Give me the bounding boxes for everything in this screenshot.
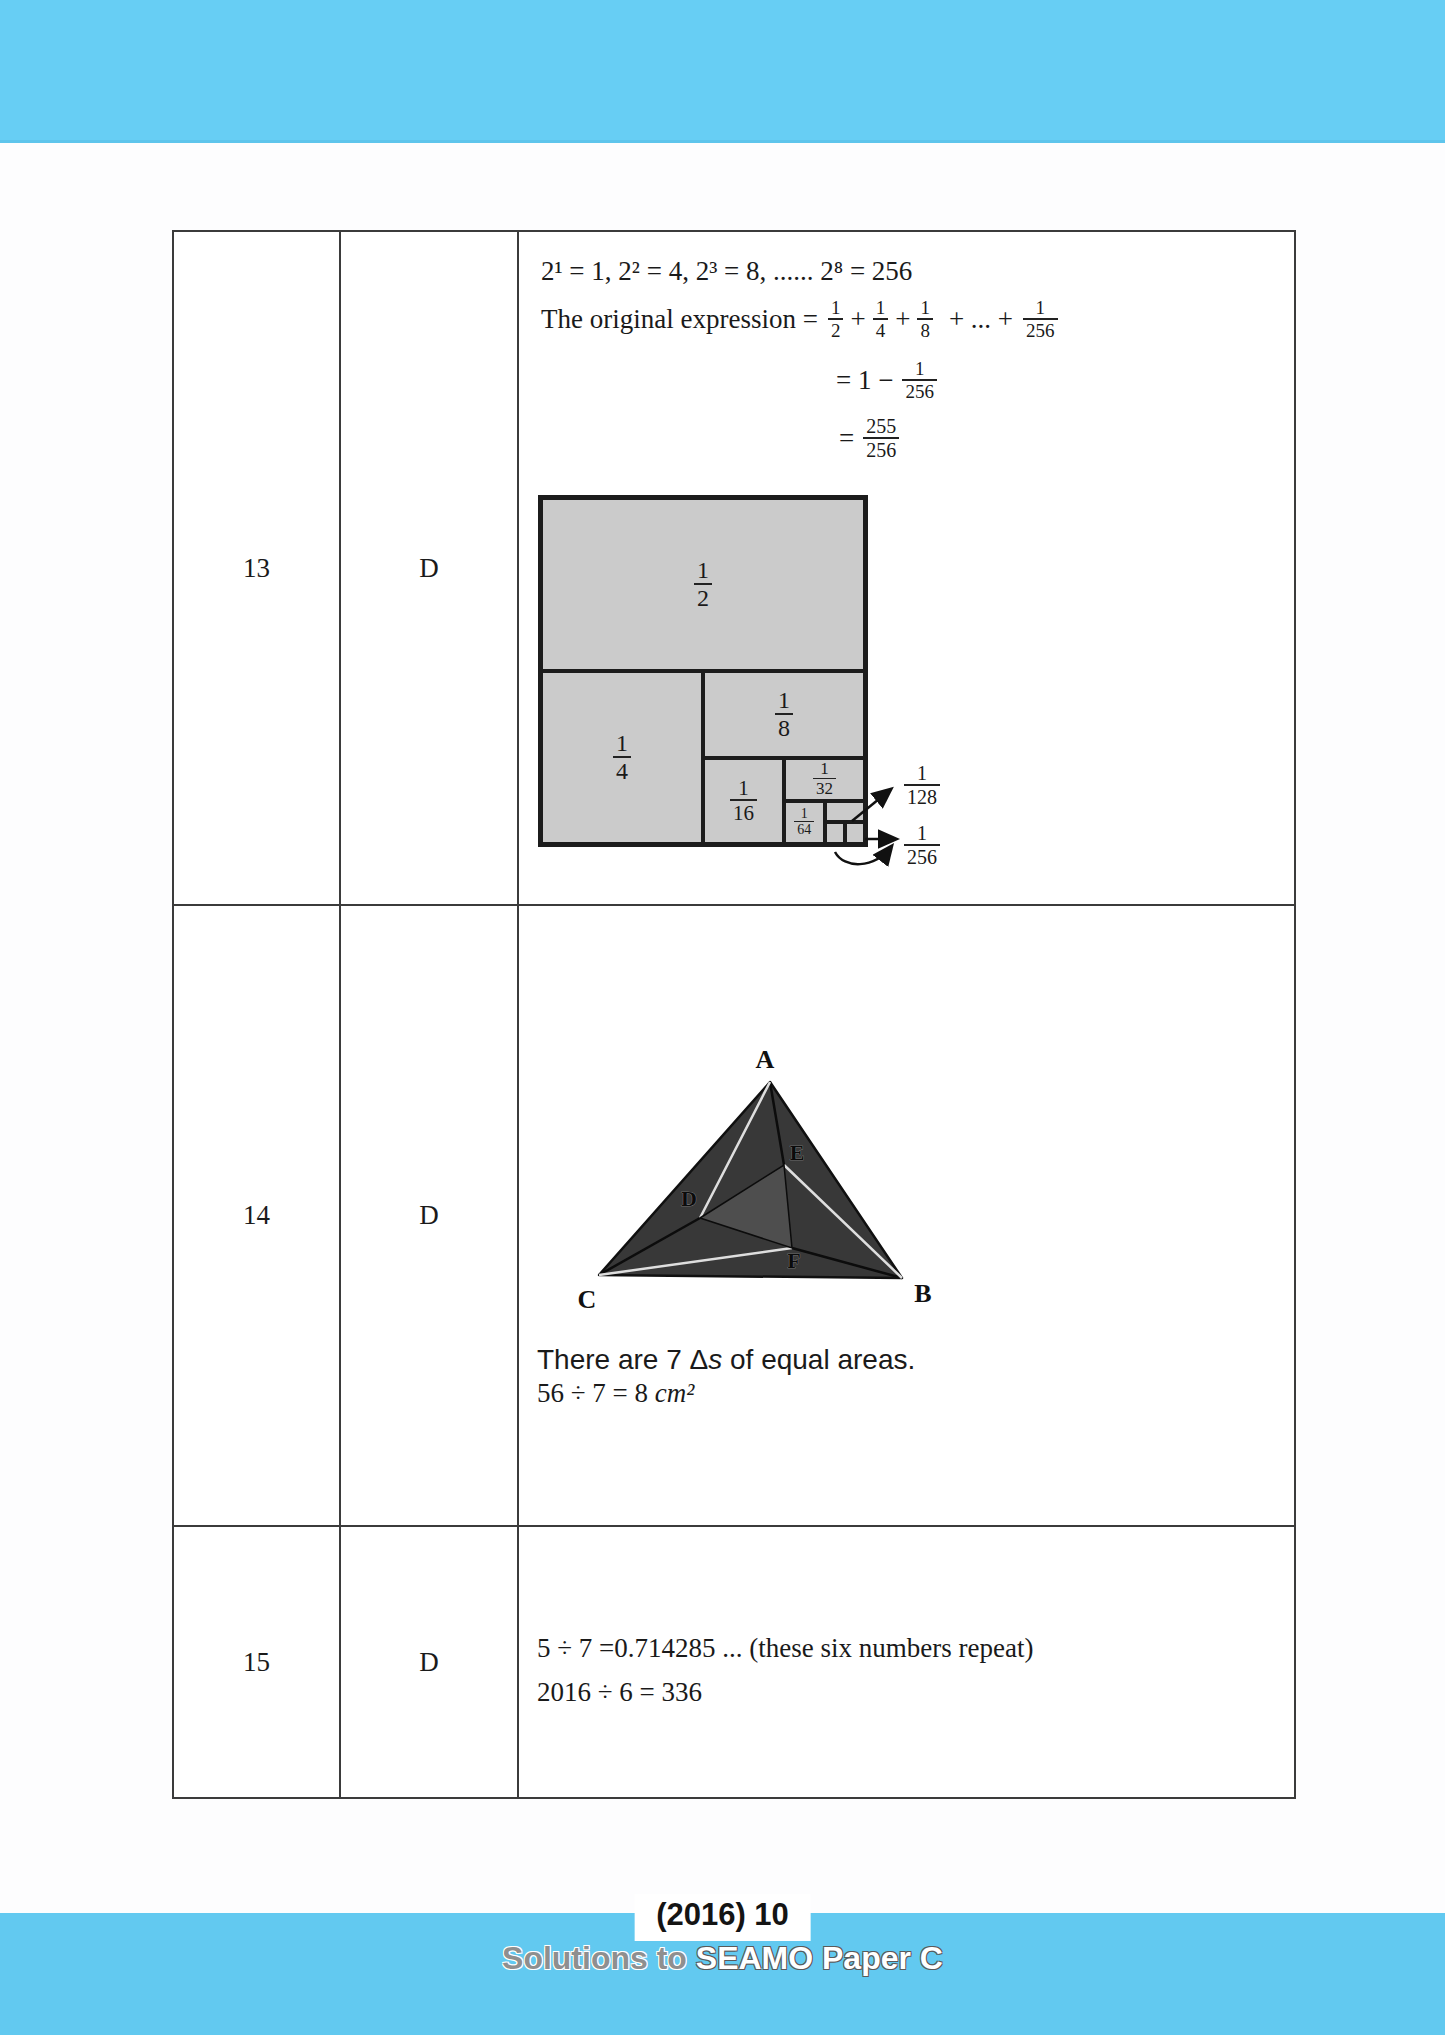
q14-answer-cell: D [341,906,519,1527]
q13-result-line: = 255256 [839,408,899,468]
region-one-256th-left [825,822,845,844]
footer-title-prefix: Solutions to [502,1940,696,1976]
region-one-eighth: 18 [703,671,865,758]
q13-number-cell: 13 [174,232,341,906]
plus-sign: + [850,304,865,335]
question-number: 14 [243,1200,270,1231]
plus-sign: + [895,304,910,335]
answer-letter: D [419,1200,439,1231]
q14-areas-text: There are 7 Δs of equal areas. [537,1344,915,1376]
q13-answer-cell: D [341,232,519,906]
q13-expression-line: The original expression = 12 + 14 + 18 +… [541,288,1058,350]
answer-letter: D [419,553,439,584]
label-one-256th: 1256 [904,823,940,868]
label-one-eighth: 18 [775,688,793,741]
region-one-128th [825,801,866,823]
q15-answer-cell: D [341,1527,519,1797]
q14-calc-line: 56 ÷ 7 = 8 cm² [537,1378,694,1409]
fraction-255-256: 255256 [863,416,899,461]
footer-title: Solutions to SEAMO Paper C [0,1940,1445,1977]
solutions-table: 13 D 2¹ = 1, 2² = 4, 2³ = 8, ...... 2⁸ =… [172,230,1296,1799]
q15-division-line: 5 ÷ 7 =0.714285 ... (these six numbers r… [537,1633,1033,1664]
curved-arrow-icon [835,847,891,864]
q13-solution-cell: 2¹ = 1, 2² = 4, 2³ = 8, ...... 2⁸ = 256 … [519,232,1294,906]
unit-square: 12 14 18 116 132 164 [538,495,868,847]
vertex-label-a: A [756,1045,775,1074]
question-number: 13 [243,553,270,584]
fraction-one-eighth: 18 [917,298,933,341]
q15-number-cell: 15 [174,1527,341,1797]
q15-solution-cell: 5 ÷ 7 =0.714285 ... (these six numbers r… [519,1527,1294,1797]
label-one-quarter: 14 [613,731,631,784]
point-label-f: F [787,1248,800,1273]
expression-prefix: The original expression = [541,304,818,335]
triangle-abc-svg: A B C D E F [549,1034,949,1334]
fraction-one-256th: 1256 [902,359,937,402]
region-one-thirtysecond: 132 [784,758,865,801]
region-one-quarter: 14 [541,671,703,844]
equals-sign: = [839,423,854,454]
outside-label-256: 1256 [904,823,940,868]
label-one-thirtysecond: 132 [813,760,836,798]
plus-dots-plus: + ... + [949,304,1013,335]
answer-letter: D [419,1647,439,1678]
vertex-label-b: B [914,1279,931,1308]
label-one-128th: 1128 [904,763,940,808]
triangle-figure: A B C D E F [549,1034,949,1334]
q15-result-line: 2016 ÷ 6 = 336 [537,1677,702,1708]
question-number: 15 [243,1647,270,1678]
footer-title-main: SEAMO Paper C [696,1940,943,1976]
fraction-one-quarter: 14 [873,298,889,341]
region-one-sixtyfourth: 164 [784,801,825,844]
point-label-d: D [681,1186,697,1211]
q13-step2-line: = 1 − 1256 [836,352,937,408]
region-one-sixteenth: 116 [703,758,784,845]
point-label-e: E [790,1140,805,1165]
label-one-sixteenth: 116 [730,777,757,824]
q14-number-cell: 14 [174,906,341,1527]
halving-square-diagram: 12 14 18 116 132 164 [538,495,1018,900]
fraction-one-256th: 1256 [1023,298,1058,341]
page-number-tab: (2016) 10 [634,1894,811,1941]
outside-label-128: 1128 [904,763,940,808]
q13-powers-line: 2¹ = 1, 2² = 4, 2³ = 8, ...... 2⁸ = 256 [541,256,912,287]
top-blue-bar [0,0,1445,143]
region-one-half: 12 [541,498,865,671]
label-one-half: 12 [694,558,712,611]
q14-solution-cell: A B C D E F There are 7 Δs of equal area… [519,906,1294,1527]
region-one-256th-right [845,822,865,844]
label-one-sixtyfourth: 164 [794,807,814,837]
vertex-label-c: C [578,1285,597,1314]
fraction-one-half: 12 [828,298,844,341]
equals-one-minus: = 1 − [836,365,893,396]
